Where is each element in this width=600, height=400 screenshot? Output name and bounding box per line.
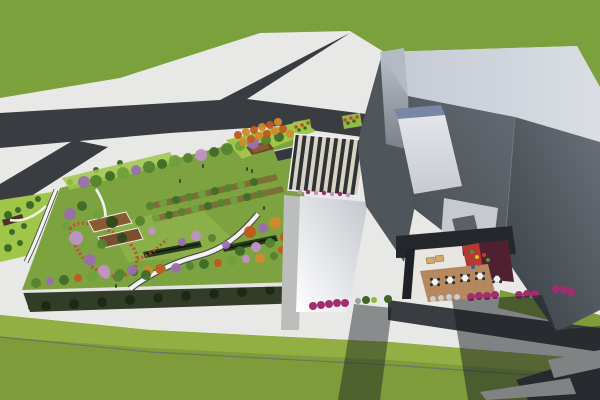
tree	[59, 275, 69, 285]
cafe-chair	[482, 272, 485, 275]
sun-lounger	[426, 257, 435, 264]
cafe-chair	[452, 281, 455, 284]
planter-flower	[298, 190, 302, 194]
tree	[199, 259, 209, 269]
hedge-bush	[181, 291, 191, 301]
verge-shrub	[349, 116, 353, 120]
hedge-bush	[209, 289, 219, 299]
tree	[186, 262, 194, 270]
verge-shrub	[300, 123, 304, 127]
cafe-chair	[430, 278, 433, 281]
hedge-bush	[252, 287, 260, 295]
tree	[87, 272, 97, 282]
striped-pergola-canopy	[288, 134, 366, 196]
planter-flower	[322, 191, 326, 195]
play-equipment	[477, 262, 481, 266]
verge-shrub	[306, 121, 310, 125]
tree	[255, 253, 265, 263]
cafe-chair	[445, 281, 448, 284]
tree	[148, 227, 156, 235]
tree	[242, 128, 250, 136]
tree	[255, 132, 263, 140]
tree	[183, 153, 193, 163]
bush	[4, 211, 12, 219]
tree	[258, 123, 266, 131]
shrub	[567, 288, 575, 296]
tree	[256, 190, 264, 198]
hedge-bush	[153, 293, 163, 303]
tree	[165, 211, 173, 219]
hedge-bush	[56, 301, 64, 309]
shrub	[552, 285, 560, 293]
person	[179, 179, 181, 183]
tree	[84, 254, 96, 266]
hedge-bush	[168, 293, 176, 301]
bush	[35, 196, 41, 202]
tree	[217, 199, 225, 207]
shrub	[384, 295, 392, 303]
shrub	[325, 300, 333, 308]
shrub	[430, 296, 436, 302]
tree	[77, 201, 87, 211]
tree	[172, 196, 180, 204]
tree	[222, 241, 230, 249]
tree	[127, 265, 137, 275]
tree	[234, 131, 242, 139]
tree	[141, 270, 151, 280]
tree	[204, 202, 212, 210]
tree	[237, 181, 245, 189]
tree	[191, 205, 199, 213]
bush	[9, 229, 15, 235]
hedge-bush	[112, 297, 120, 305]
shrub	[317, 301, 325, 309]
tree	[195, 149, 207, 161]
verge-shrub	[343, 118, 347, 122]
play-equipment	[470, 250, 474, 254]
tree	[265, 238, 275, 248]
cafe-chair	[475, 277, 478, 280]
play-equipment	[482, 253, 486, 257]
tree	[97, 239, 107, 249]
verge-shrub	[297, 128, 301, 132]
hedge-bush	[196, 291, 204, 299]
verge-shrub	[303, 126, 307, 130]
person	[431, 310, 433, 314]
person	[115, 284, 117, 288]
tree	[208, 234, 216, 242]
shrub	[438, 295, 444, 301]
hedge-bush	[125, 295, 135, 305]
tree	[131, 165, 141, 175]
play-equipment	[471, 265, 475, 269]
shrub	[355, 298, 361, 304]
planter-flower	[338, 192, 342, 196]
tree	[185, 193, 193, 201]
tree	[178, 208, 186, 216]
cafe-chair	[492, 280, 495, 283]
tree	[64, 208, 76, 220]
verge-shrub	[352, 119, 356, 123]
cafe-chair	[499, 275, 502, 278]
tree	[155, 264, 165, 274]
tree	[74, 274, 82, 282]
tree	[90, 175, 102, 187]
planter-flower	[346, 193, 350, 197]
bush	[15, 207, 21, 213]
verge-shrub	[355, 115, 359, 119]
tree	[98, 265, 110, 277]
tree	[211, 187, 219, 195]
bush	[26, 201, 34, 209]
tree	[235, 246, 245, 256]
bush	[4, 244, 12, 252]
shrub	[454, 294, 460, 300]
cafe-chair	[437, 283, 440, 286]
cafe-chair	[430, 283, 433, 286]
tree	[263, 130, 271, 138]
planter-flower	[306, 190, 310, 194]
tree	[247, 135, 255, 143]
cafe-chair	[467, 279, 470, 282]
cafe-chair	[445, 276, 448, 279]
tree	[227, 256, 237, 266]
person	[246, 167, 248, 171]
tree	[250, 178, 258, 186]
tree	[143, 161, 155, 173]
tree	[239, 138, 247, 146]
hedge-bush	[28, 303, 36, 311]
tree	[258, 223, 268, 233]
cafe-chair	[482, 277, 485, 280]
tree	[135, 216, 145, 226]
cafe-chair	[467, 274, 470, 277]
tree	[286, 130, 294, 138]
tree	[113, 272, 123, 282]
shrub	[560, 286, 568, 294]
tree	[171, 263, 181, 273]
play-equipment	[486, 258, 490, 262]
verge-shrub	[294, 125, 298, 129]
tree	[159, 199, 167, 207]
cafe-chair	[475, 272, 478, 275]
tree	[93, 209, 103, 219]
play-equipment	[475, 255, 479, 259]
tree	[157, 159, 167, 169]
tree	[105, 171, 115, 181]
tree	[198, 190, 206, 198]
tree	[243, 193, 251, 201]
tree	[242, 255, 250, 263]
hedge-bush	[224, 289, 232, 297]
bush	[21, 223, 27, 229]
shrub	[309, 302, 317, 310]
hedge-bush	[84, 299, 92, 307]
tree	[269, 217, 281, 229]
person	[263, 206, 265, 210]
tree	[221, 143, 233, 155]
tree	[117, 167, 129, 179]
tree	[224, 184, 232, 192]
tree	[69, 231, 83, 245]
tree	[46, 277, 54, 285]
tree	[78, 176, 90, 188]
aerial-site-rendering	[0, 0, 600, 400]
planter-flower	[330, 192, 334, 196]
tree	[178, 238, 186, 246]
cafe-chair	[460, 279, 463, 282]
cafe-chair	[452, 276, 455, 279]
tree	[191, 231, 201, 241]
hedge-bush	[41, 301, 51, 311]
tree	[146, 202, 154, 210]
hedge-bush	[237, 287, 247, 297]
cafe-chair	[460, 274, 463, 277]
tree	[274, 118, 282, 126]
tree	[230, 196, 238, 204]
bush	[17, 240, 23, 246]
tree	[169, 155, 181, 167]
hedge-bush	[69, 299, 79, 309]
cafe-chair	[437, 278, 440, 281]
tree	[244, 226, 256, 238]
sun-lounger	[435, 255, 444, 262]
person	[251, 169, 253, 173]
shrub	[333, 299, 341, 307]
cafe-chair	[499, 280, 502, 283]
tree	[270, 252, 278, 260]
person	[202, 164, 204, 168]
shrub	[446, 294, 452, 300]
architectural-render-viewport	[0, 0, 600, 400]
hedge-bush	[140, 295, 148, 303]
shrub	[371, 297, 377, 303]
tree	[31, 278, 41, 288]
hedge-bush	[97, 297, 107, 307]
tree	[62, 222, 70, 230]
tree	[214, 259, 222, 267]
shrub	[362, 296, 370, 304]
tree	[279, 125, 287, 133]
tree	[271, 127, 279, 135]
planter-flower	[314, 191, 318, 195]
verge-shrub	[346, 121, 350, 125]
shrub	[341, 299, 349, 307]
tree	[251, 242, 261, 252]
tree	[209, 147, 219, 157]
tree	[106, 216, 118, 228]
cafe-chair	[492, 275, 495, 278]
tree	[117, 233, 127, 243]
tree	[152, 214, 160, 222]
